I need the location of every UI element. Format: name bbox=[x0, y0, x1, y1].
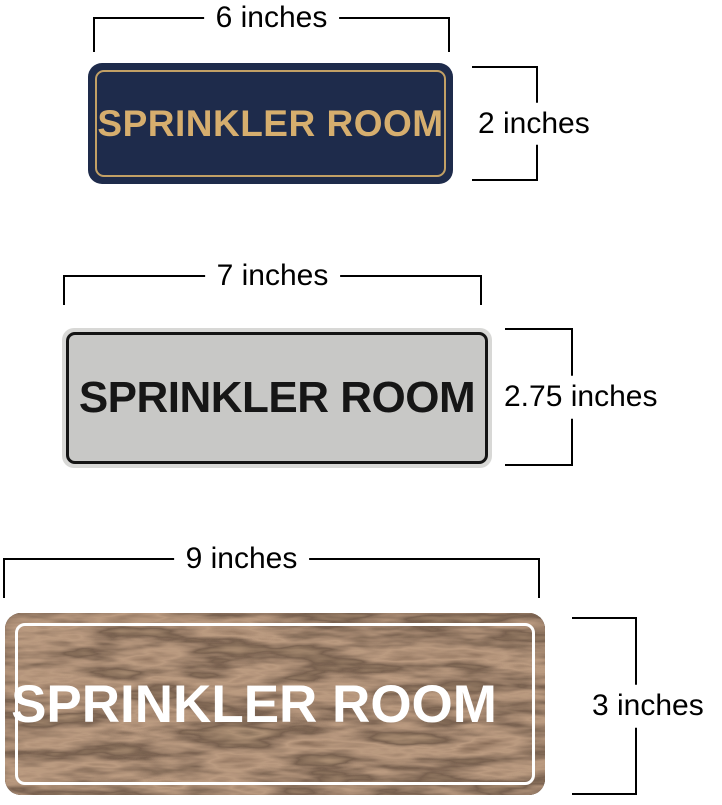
sign-walnut-white: SPRINKLER ROOM bbox=[5, 613, 545, 795]
width-dimension-label-3: 9 inches bbox=[174, 540, 310, 579]
height-dimension-label-3: 3 inches bbox=[586, 685, 710, 728]
height-dimension-label-1: 2 inches bbox=[472, 102, 596, 145]
width-dimension-label-1: 6 inches bbox=[204, 0, 340, 37]
height-dimension-bracket-1: 2 inches bbox=[472, 66, 538, 181]
sign-navy-label: SPRINKLER ROOM bbox=[97, 105, 443, 142]
sign-navy-gold: SPRINKLER ROOM bbox=[88, 63, 453, 184]
width-dimension-bracket-3: 9 inches bbox=[3, 558, 540, 598]
width-dimension-bracket-2: 7 inches bbox=[63, 275, 482, 305]
width-dimension-bracket-1: 6 inches bbox=[93, 17, 450, 52]
width-dimension-label-2: 7 inches bbox=[205, 257, 341, 296]
height-dimension-bracket-3: 3 inches bbox=[572, 617, 637, 795]
sign-walnut-label: SPRINKLER ROOM bbox=[11, 678, 497, 731]
height-dimension-label-2: 2.75 inches bbox=[498, 376, 663, 419]
sign-silver-label: SPRINKLER ROOM bbox=[79, 376, 475, 420]
height-dimension-bracket-2: 2.75 inches bbox=[505, 328, 573, 466]
sign-silver-black: SPRINKLER ROOM bbox=[62, 328, 492, 468]
size-chart-diagram: 6 inches SPRINKLER ROOM 2 inches 7 inche… bbox=[0, 0, 722, 805]
